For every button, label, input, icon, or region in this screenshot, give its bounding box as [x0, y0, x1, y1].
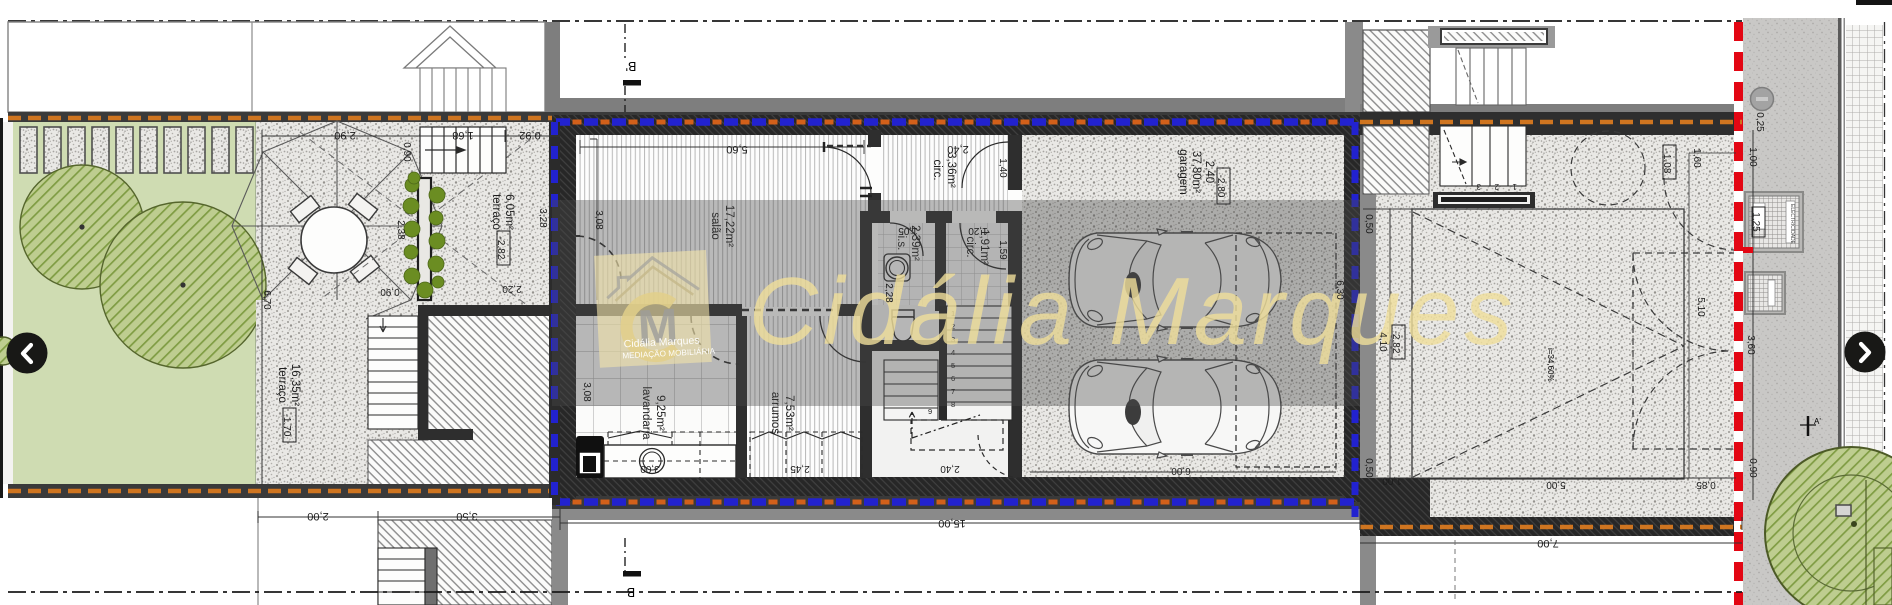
svg-text:3,50: 3,50 [456, 510, 477, 522]
svg-text:37,80m²: 37,80m² [1190, 151, 1202, 193]
svg-text:4,10: 4,10 [1377, 332, 1388, 352]
svg-text:0,92: 0,92 [519, 129, 540, 141]
svg-text:0,25: 0,25 [1754, 112, 1765, 132]
svg-text:terraço: terraço [490, 194, 502, 230]
svg-text:3,00: 3,00 [640, 463, 660, 474]
svg-text:5,00: 5,00 [1546, 479, 1566, 490]
svg-text:0,50: 0,50 [1363, 458, 1374, 478]
svg-text:5,10: 5,10 [1695, 297, 1706, 317]
svg-text:1,68: 1,68 [452, 129, 473, 141]
svg-text:2: 2 [1494, 182, 1499, 191]
svg-text:2,28: 2,28 [883, 283, 894, 303]
svg-text:2,40: 2,40 [940, 463, 960, 474]
svg-text:B': B' [626, 59, 637, 73]
svg-text:3,36m²: 3,36m² [945, 152, 957, 188]
svg-text:0,85: 0,85 [1696, 479, 1716, 490]
svg-text:3,08: 3,08 [593, 210, 604, 230]
svg-text:16,35m²: 16,35m² [289, 364, 301, 406]
svg-text:3,08: 3,08 [581, 382, 592, 402]
svg-text:3: 3 [1476, 182, 1481, 191]
svg-text:0,90: 0,90 [380, 286, 400, 297]
svg-text:1,59: 1,59 [997, 240, 1008, 260]
svg-text:1,00: 1,00 [1382, 475, 1402, 486]
svg-text:15,00: 15,00 [938, 517, 966, 529]
svg-text:0,90: 0,90 [1747, 458, 1758, 478]
svg-text:B: B [627, 585, 635, 599]
svg-text:2,40: 2,40 [947, 143, 968, 155]
svg-text:9: 9 [928, 407, 932, 416]
svg-text:0,50: 0,50 [1363, 214, 1374, 234]
svg-text:2,90: 2,90 [334, 129, 355, 141]
svg-text:garagem: garagem [1177, 149, 1189, 194]
svg-text:1,40: 1,40 [997, 158, 1008, 178]
svg-text:6,05m²: 6,05m² [503, 194, 515, 230]
svg-text:1: 1 [1512, 182, 1517, 191]
svg-text:2,40: 2,40 [1203, 161, 1215, 183]
svg-text:1,05: 1,05 [898, 225, 918, 236]
svg-text:2,00: 2,00 [307, 510, 328, 522]
svg-text:5,60: 5,60 [726, 143, 747, 155]
svg-text:6,70: 6,70 [261, 290, 272, 310]
svg-text:ELECTRICIDADE: ELECTRICIDADE [1789, 204, 1795, 245]
svg-text:Cidália Marques: Cidália Marques [749, 258, 1518, 365]
svg-text:circ.: circ. [931, 159, 943, 180]
svg-text:6,00: 6,00 [1171, 465, 1191, 476]
svg-text:terraço: terraço [276, 367, 288, 403]
svg-text:A': A' [1814, 417, 1821, 426]
svg-text:2,20: 2,20 [502, 283, 522, 294]
svg-text:2,38: 2,38 [395, 220, 406, 240]
svg-text:6,30: 6,30 [1334, 280, 1345, 300]
svg-text:2,45: 2,45 [790, 463, 810, 474]
svg-text:7,00: 7,00 [1537, 537, 1558, 549]
svg-text:1,20: 1,20 [968, 225, 988, 236]
svg-text:0,90: 0,90 [401, 142, 412, 162]
svg-text:1,60: 1,60 [1691, 148, 1702, 168]
svg-text:3,28: 3,28 [537, 208, 548, 228]
svg-text:i=34,60%: i=34,60% [1546, 348, 1555, 382]
svg-text:3,60: 3,60 [1745, 335, 1756, 355]
svg-text:1,00: 1,00 [1747, 147, 1758, 167]
